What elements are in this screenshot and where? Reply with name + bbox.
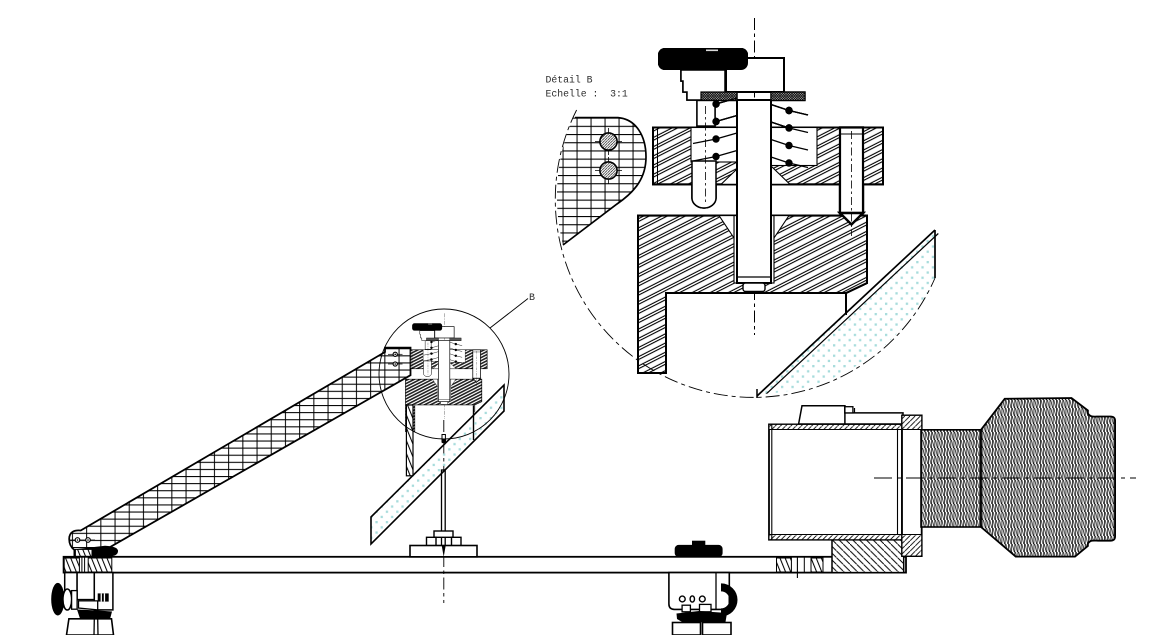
- svg-text:Echelle : 3:1: Echelle : 3:1: [546, 88, 628, 99]
- svg-text:Détail B: Détail B: [546, 75, 593, 86]
- svg-text:B: B: [529, 293, 535, 304]
